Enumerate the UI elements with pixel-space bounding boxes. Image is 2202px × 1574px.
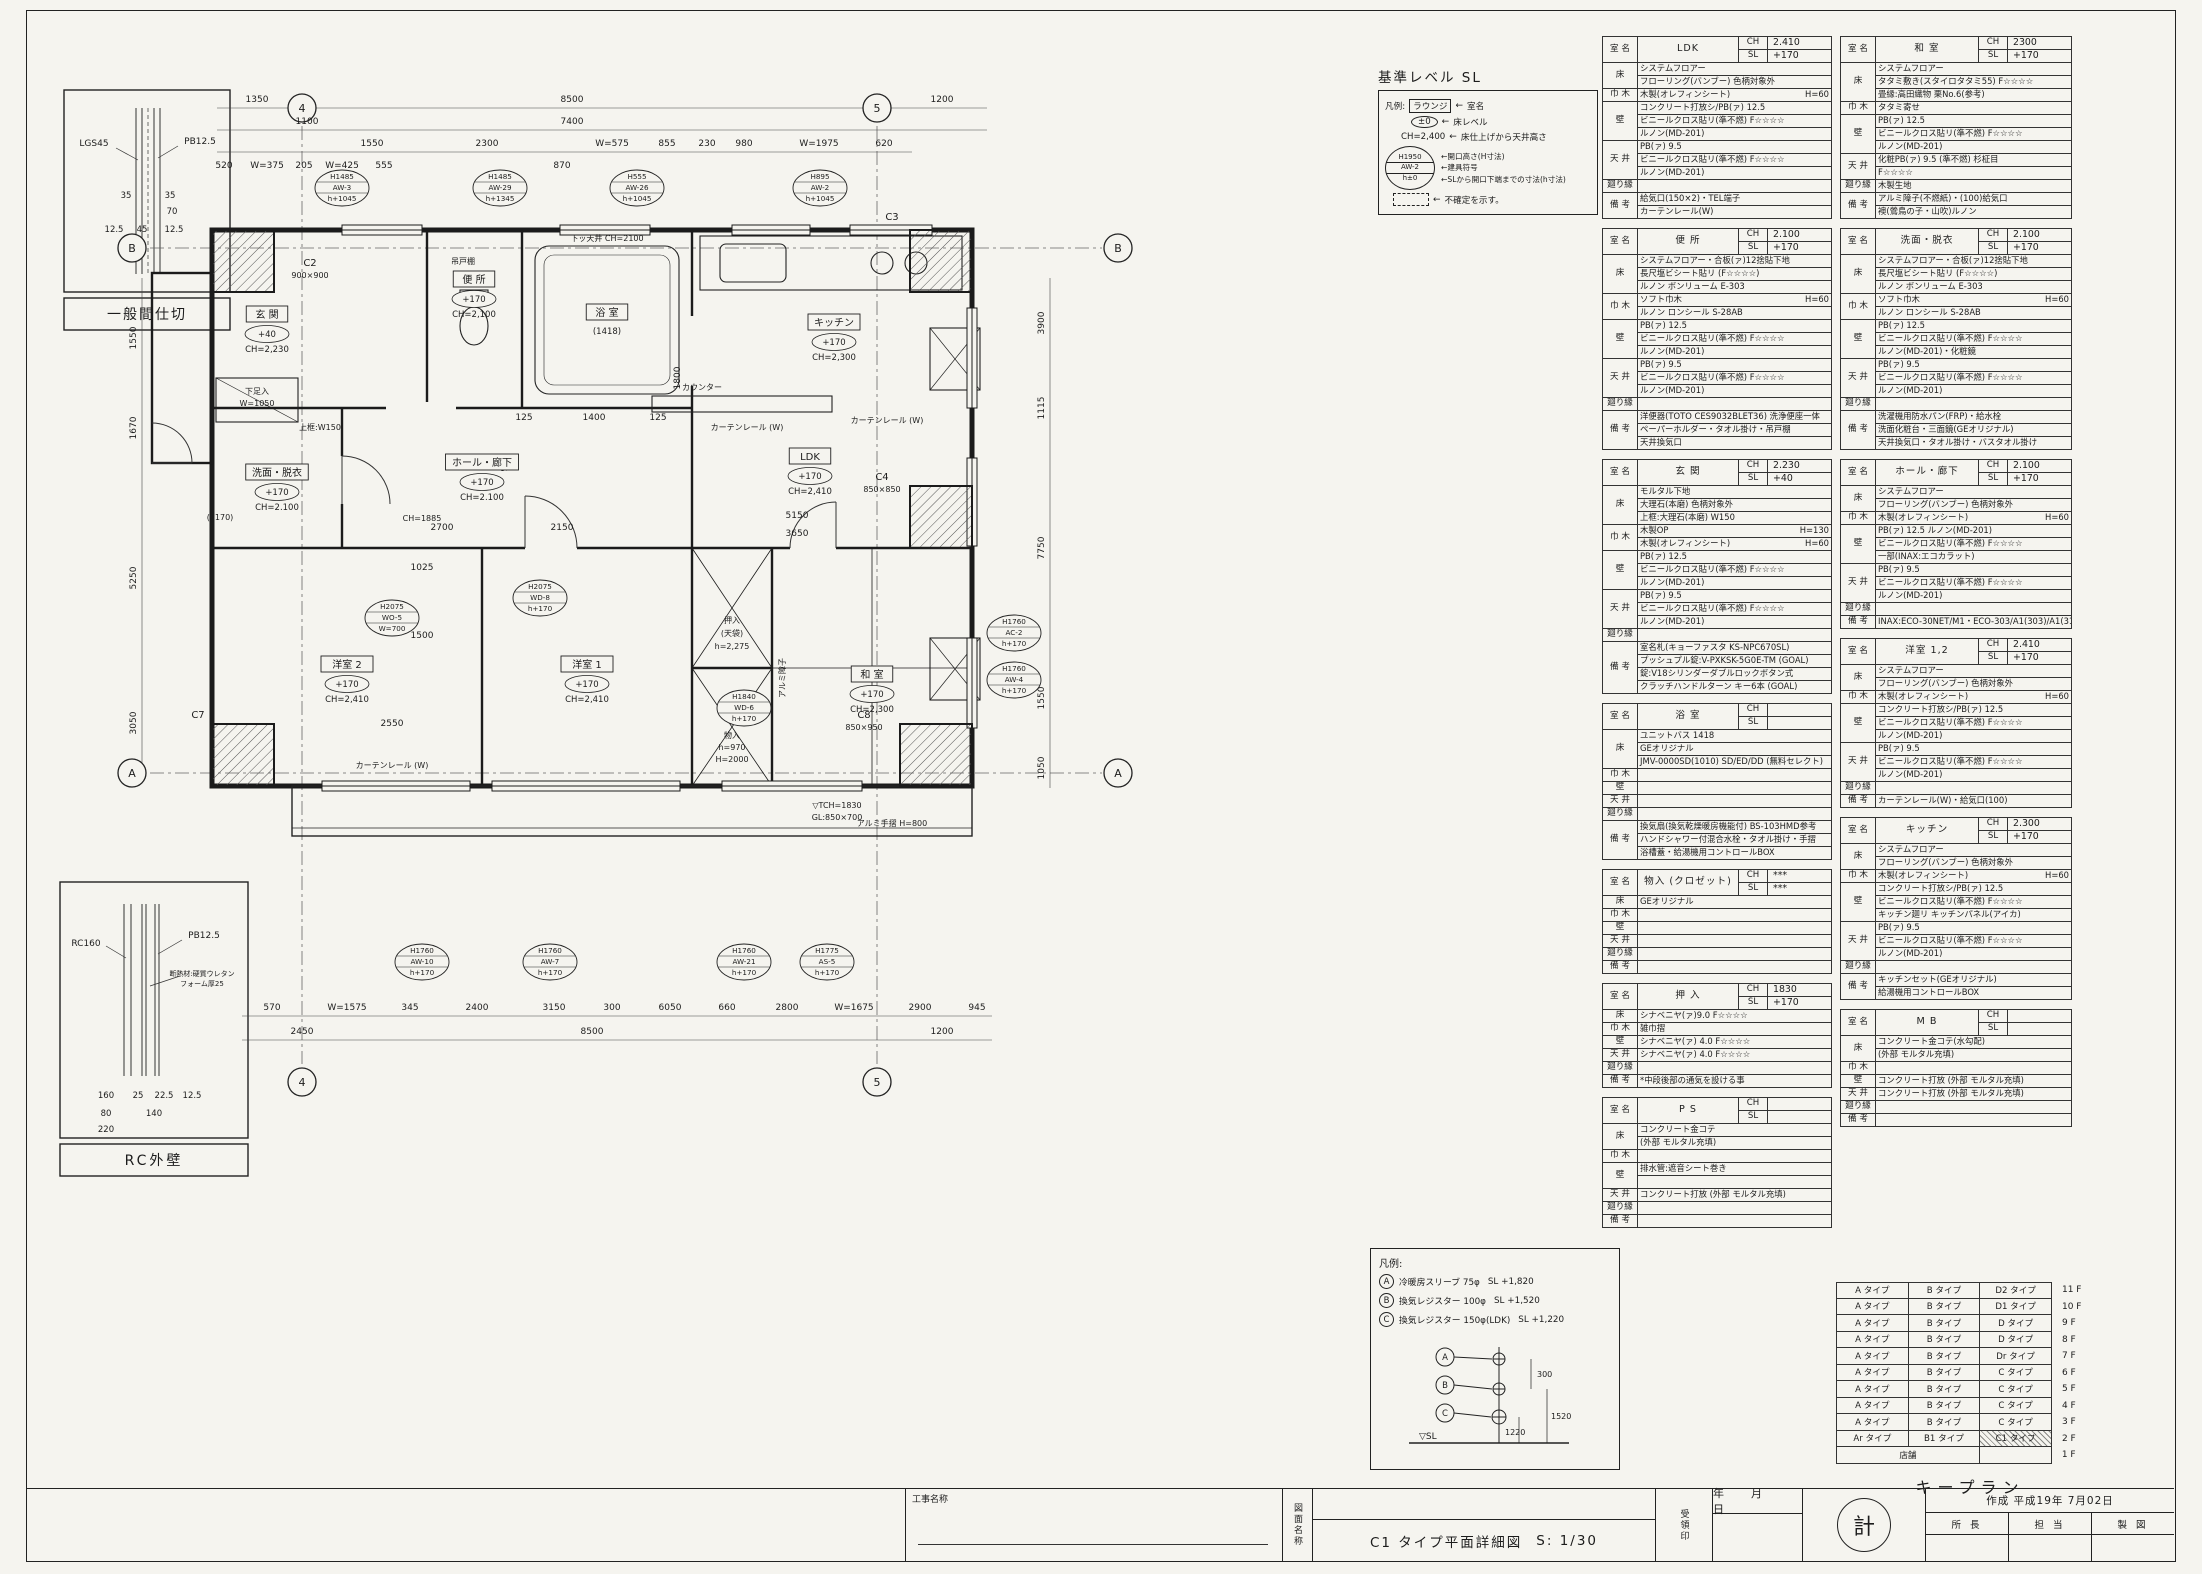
spec-line: PB(ァ) 9.5 bbox=[1876, 922, 2072, 935]
spec-cell: M B bbox=[1876, 1010, 1979, 1036]
spec-cell: CH bbox=[1739, 1098, 1768, 1111]
spec-line bbox=[1638, 948, 1832, 961]
column-C8 bbox=[900, 724, 972, 786]
spec-cell: +170 bbox=[2008, 831, 2072, 844]
spec-cell: 廻り縁 bbox=[1841, 1101, 1876, 1114]
spec-cell: CH bbox=[1739, 870, 1768, 883]
spec-cell: 備 考 bbox=[1841, 974, 1876, 1000]
spec-cell: 巾 木 bbox=[1603, 525, 1638, 551]
tag-line: H1950 bbox=[1386, 153, 1434, 162]
spec-cell: CH bbox=[1739, 984, 1768, 997]
spec-line bbox=[1638, 795, 1832, 808]
keyplan-cell: B タイプ bbox=[1909, 1315, 1981, 1332]
spec-cell: 床 bbox=[1841, 665, 1876, 691]
title-block: 工事名称 図面名称 C1 タイプ平面詳細図 S: 1/30 受領印 年 月 日 … bbox=[26, 1488, 2174, 1561]
dimension-label: 620 bbox=[875, 139, 892, 149]
spec-cell: CH bbox=[1979, 229, 2008, 242]
keyplan-cell: B1 タイプ bbox=[1909, 1431, 1981, 1448]
plan-note: 下足入 bbox=[245, 387, 269, 396]
spec-line: PB(ァ) 12.5 ルノン(MD-201) bbox=[1876, 525, 2072, 538]
spec-cell: 壁 bbox=[1841, 704, 1876, 743]
keyplan-row: A タイプB タイプC タイプ4 F bbox=[1836, 1398, 2104, 1415]
keyplan-floor-label: 1 F bbox=[2052, 1447, 2104, 1464]
legend-item-text: 換気レジスター 100φ bbox=[1399, 1294, 1486, 1307]
spec-line: ユニットバス 1418 bbox=[1638, 730, 1832, 743]
keyplan-floor-label: 8 F bbox=[2052, 1332, 2104, 1349]
dimension-label: 3050 bbox=[129, 711, 139, 734]
spec-cell: *** bbox=[1768, 870, 1832, 883]
spec-cell: 備 考 bbox=[1603, 411, 1638, 450]
dimension-label: 1550 bbox=[1037, 686, 1047, 709]
spec-line: コンクリート打放シ/PB(ァ) 12.5 bbox=[1876, 704, 2072, 717]
column-C7 bbox=[212, 724, 274, 786]
plan-note: カーテンレール (W) bbox=[356, 761, 429, 770]
spec-cell: +170 bbox=[1768, 242, 1832, 255]
keyplan-cell: B タイプ bbox=[1909, 1348, 1981, 1365]
spec-line: ビニールクロス貼リ(準不燃) F☆☆☆☆ bbox=[1638, 603, 1832, 616]
spec-line: シナベニヤ(ァ)9.0 F☆☆☆☆ bbox=[1638, 1010, 1832, 1023]
spec-cell: SL bbox=[1739, 50, 1768, 63]
spec-line: 天井換気口 bbox=[1638, 437, 1832, 450]
spec-cell: 天 井 bbox=[1603, 935, 1638, 948]
spec-cell: 室 名 bbox=[1841, 460, 1876, 486]
spec-cell: SL bbox=[1979, 831, 2008, 844]
spec-line: 長尺塩ビシート貼リ (F☆☆☆☆) bbox=[1638, 268, 1832, 281]
drawing-title-upper bbox=[1313, 1489, 1655, 1520]
plan-note: H=2000 bbox=[715, 755, 748, 764]
role-drafter: 製 図 bbox=[2091, 1513, 2174, 1534]
legend-undetermined-label: 不確定を示す。 bbox=[1445, 194, 1504, 206]
spec-line: INAX:ECO-30NET/M1・ECO-303/A1(303)/A1(31)… bbox=[1876, 616, 2072, 629]
spec-cell: +40 bbox=[1768, 473, 1832, 486]
dimension-label: 855 bbox=[658, 139, 675, 149]
legend-sample-room: ラウンジ bbox=[1409, 99, 1451, 113]
spec-cell: キッチン bbox=[1876, 818, 1979, 844]
spec-line: システムフロアー・合板(ァ)12捨貼下地 bbox=[1876, 255, 2072, 268]
keyplan-cell: B タイプ bbox=[1909, 1282, 1981, 1299]
date-cell: 年 月 日 bbox=[1712, 1489, 1802, 1561]
finish-schedule-PS: 室 名P SCH SL 床コンクリート金コテ(外部 モルタル充填)巾 木 壁排水… bbox=[1602, 1097, 1832, 1228]
spec-line bbox=[1638, 909, 1832, 922]
spec-line bbox=[1638, 782, 1832, 795]
stove-burner bbox=[871, 252, 893, 274]
keyplan-row: A タイプB タイプDr タイプ7 F bbox=[1836, 1348, 2104, 1365]
spec-cell: 天 井 bbox=[1603, 1189, 1638, 1202]
spec-line bbox=[1638, 1202, 1832, 1215]
grid-bubble-label: 4 bbox=[299, 102, 306, 115]
project-name-cell: 工事名称 bbox=[905, 1489, 1282, 1561]
ldk-counter bbox=[652, 396, 832, 412]
plan-note: ▽TCH=1830 bbox=[812, 801, 861, 810]
room-ceiling-height: (1418) bbox=[593, 327, 621, 337]
role-seal-box bbox=[2008, 1535, 2091, 1561]
finish-schedule-ホール・廊下: 室 名ホール・廊下CH2.100SL+170床システムフロアーフローリング(バン… bbox=[1840, 459, 2072, 629]
spec-line: ビニールクロス貼リ(準不燃) F☆☆☆☆ bbox=[1876, 896, 2072, 909]
spec-cell: 床 bbox=[1603, 1124, 1638, 1150]
fixture-tag-line: h+1045 bbox=[328, 194, 357, 203]
spec-cell: SL bbox=[1979, 242, 2008, 255]
keyplan-cell: B タイプ bbox=[1909, 1398, 1981, 1415]
finish-schedule-MB: 室 名M BCH SL 床コンクリート金コテ(水勾配)(外部 モルタル充填)巾 … bbox=[1840, 1009, 2072, 1127]
spec-cell: LDK bbox=[1638, 37, 1739, 63]
spec-cell: 洋室 1,2 bbox=[1876, 639, 1979, 665]
spec-line bbox=[1638, 180, 1832, 193]
spec-line: 洋便器(TOTO CES9032BLET36) 洗浄便座一体 bbox=[1638, 411, 1832, 424]
rcwall-caption: RC外壁 bbox=[125, 1153, 184, 1169]
dimension-label: 660 bbox=[718, 1003, 735, 1013]
plan-note: CH=1885 bbox=[403, 514, 442, 523]
fixtures bbox=[216, 236, 980, 836]
role-chief: 所 長 bbox=[1926, 1513, 2008, 1534]
spec-line: ルノン(MD-201) bbox=[1876, 141, 2072, 154]
fixture-tag-line: W=700 bbox=[379, 624, 406, 633]
spec-cell: 天 井 bbox=[1841, 743, 1876, 782]
spec-cell: 壁 bbox=[1841, 883, 1876, 922]
arrow-icon: ← bbox=[1433, 195, 1441, 205]
spec-line: 錠:V18シリンダーダブルロックボタン式 bbox=[1638, 668, 1832, 681]
spec-line: PB(ァ) 9.5 bbox=[1638, 359, 1832, 372]
grid-bubble-label: 4 bbox=[299, 1076, 306, 1089]
room-ceiling-height: CH=2,100 bbox=[452, 310, 496, 320]
spec-line: ビニールクロス貼リ(準不燃) F☆☆☆☆ bbox=[1876, 756, 2072, 769]
approval-seal: 計 bbox=[1837, 1498, 1891, 1552]
spec-cell: 廻り縁 bbox=[1603, 398, 1638, 411]
keyplan-row: A タイプB タイプD2 タイプ11 F bbox=[1836, 1282, 2104, 1299]
spec-line: ペーパーホルダー・タオル掛け・吊戸棚 bbox=[1638, 424, 1832, 437]
spec-line: ビニールクロス貼リ(準不燃) F☆☆☆☆ bbox=[1876, 538, 2072, 551]
spec-cell: +170 bbox=[2008, 652, 2072, 665]
spec-cell: +170 bbox=[2008, 473, 2072, 486]
spec-line: システムフロアー・合板(ァ)12捨貼下地 bbox=[1638, 255, 1832, 268]
plan-note: 下ッ天井 CH=2100 bbox=[570, 233, 643, 243]
spec-cell: 室 名 bbox=[1603, 984, 1638, 1010]
room-ceiling-height: CH=2,410 bbox=[325, 695, 369, 705]
column-size: 850×950 bbox=[845, 723, 882, 732]
spec-cell: SL bbox=[1739, 997, 1768, 1010]
spec-cell: 巾 木 bbox=[1841, 512, 1876, 525]
spec-line: ビニールクロス貼リ(準不燃) F☆☆☆☆ bbox=[1638, 564, 1832, 577]
spec-line: ルノン(MD-201) bbox=[1638, 128, 1832, 141]
fixture-tag-line: h+170 bbox=[538, 968, 563, 977]
spec-cell: 物入 (クロゼット) bbox=[1638, 870, 1739, 896]
drawing-scale: S: 1/30 bbox=[1536, 1533, 1598, 1549]
spec-line: モルタル下地 bbox=[1638, 486, 1832, 499]
floor-plan: C2900×900C3C4850×850C8850×950C7 4545BABA… bbox=[92, 78, 1160, 1140]
spec-cell: 備 考 bbox=[1841, 795, 1876, 808]
grid-bubble-label: B bbox=[1114, 242, 1122, 255]
spec-line: カーテンレール(W)・給気口(100) bbox=[1876, 795, 2072, 808]
fixture-tag-line: AW-7 bbox=[541, 957, 560, 966]
spec-line: ビニールクロス貼リ(準不燃) F☆☆☆☆ bbox=[1876, 128, 2072, 141]
fixture-tag-line: h+1045 bbox=[806, 194, 835, 203]
room-name: キッチン bbox=[814, 317, 854, 329]
spec-line: システムフロアー bbox=[1876, 486, 2072, 499]
keyplan-floor-label: 5 F bbox=[2052, 1381, 2104, 1398]
spec-cell: 床 bbox=[1841, 1036, 1876, 1062]
spec-cell: 壁 bbox=[1603, 1163, 1638, 1189]
spec-line: GEオリジナル bbox=[1638, 896, 1832, 909]
spec-cell: 壁 bbox=[1603, 102, 1638, 141]
drawing-title: C1 タイプ平面詳細図 bbox=[1370, 1531, 1522, 1551]
spec-cell: 室 名 bbox=[1603, 1098, 1638, 1124]
column-label: C2 bbox=[303, 258, 316, 269]
keyplan-cell: D1 タイプ bbox=[1980, 1299, 2052, 1316]
spec-line: コンクリート金コテ(水勾配) bbox=[1876, 1036, 2072, 1049]
spec-cell: +170 bbox=[1768, 50, 1832, 63]
column-C3 bbox=[910, 230, 972, 292]
spec-line: (外部 モルタル充填) bbox=[1638, 1137, 1832, 1150]
spec-line: 襖(鶯鳥の子・山吹)ルノン bbox=[1876, 206, 2072, 219]
spec-line: PB(ァ) 9.5 bbox=[1876, 743, 2072, 756]
spec-cell: 廻り縁 bbox=[1841, 398, 1876, 411]
stamp-cell: 計 bbox=[1802, 1489, 1925, 1561]
spec-line bbox=[1876, 398, 2072, 411]
fixture-tag-line: h+1045 bbox=[623, 194, 652, 203]
finish-schedule-玄関: 室 名玄 関CH2.230SL+40床モルタル下地大理石(本磨) 色柄対象外上框… bbox=[1602, 459, 1832, 694]
spec-cell: 室 名 bbox=[1841, 37, 1876, 63]
keyplan-cell: B タイプ bbox=[1909, 1414, 1981, 1431]
dimension-label: 5150 bbox=[786, 511, 809, 521]
spec-cell: 天 井 bbox=[1841, 1088, 1876, 1101]
spec-cell: 廻り縁 bbox=[1603, 808, 1638, 821]
spec-line: 給気口(150×2)・TEL端子 bbox=[1638, 193, 1832, 206]
grid-bubble-label: B bbox=[128, 242, 136, 255]
room-name: 便 所 bbox=[462, 273, 485, 286]
titleblock-blank-cell bbox=[26, 1489, 905, 1561]
column-label: C7 bbox=[191, 710, 204, 721]
spec-cell: +170 bbox=[2008, 242, 2072, 255]
spec-cell: CH bbox=[1739, 37, 1768, 50]
spec-cell: 天 井 bbox=[1603, 141, 1638, 180]
legend-tag-label: 建具符号 bbox=[1447, 163, 1477, 172]
spec-cell: 2300 bbox=[2008, 37, 2072, 50]
keyplan-cell: A タイプ bbox=[1836, 1414, 1909, 1431]
finish-schedule-キッチン: 室 名キッチンCH2.300SL+170床システムフロアーフローリング(バンブー… bbox=[1840, 817, 2072, 1000]
spec-cell: 巾 木 bbox=[1603, 909, 1638, 922]
legend-item: A冷暖房スリーブ 75φSL +1,820 bbox=[1379, 1274, 1611, 1289]
spec-line: 排水管:遮音シート巻き bbox=[1638, 1163, 1832, 1176]
spec-cell: 巾 木 bbox=[1603, 769, 1638, 782]
role-seal-box bbox=[1926, 1535, 2008, 1561]
arrow-icon: ← bbox=[1455, 101, 1463, 111]
spec-line: GEオリジナル bbox=[1638, 743, 1832, 756]
arrow-icon: ← bbox=[1449, 132, 1457, 142]
spec-cell: 2.300 bbox=[2008, 818, 2072, 831]
keyplan-span-cell: 店舗 bbox=[1836, 1447, 1980, 1464]
keyplan-cell: B タイプ bbox=[1909, 1332, 1981, 1349]
dimension-label: 1025 bbox=[411, 563, 434, 573]
room-level: +170 bbox=[265, 488, 288, 498]
spec-cell: 備 考 bbox=[1603, 193, 1638, 219]
dimension-label: 2300 bbox=[476, 139, 499, 149]
dimension-label: W=1975 bbox=[799, 139, 838, 149]
spec-cell: 室 名 bbox=[1841, 1010, 1876, 1036]
spec-line: PB(ァ) 9.5 bbox=[1638, 590, 1832, 603]
spec-cell: 天 井 bbox=[1603, 359, 1638, 398]
dimension-label: 2900 bbox=[909, 1003, 932, 1013]
spec-line: 大理石(本磨) 色柄対象外 bbox=[1638, 499, 1832, 512]
finish-schedule-和室: 室 名和 室CH2300SL+170床システムフロアータタミ敷き(スタイロタタミ… bbox=[1840, 36, 2072, 219]
spec-line bbox=[1638, 922, 1832, 935]
spec-cell: 壁 bbox=[1603, 1036, 1638, 1049]
diagram-key: B bbox=[1442, 1381, 1448, 1391]
spec-cell: CH bbox=[1739, 704, 1768, 717]
finish-schedule-押入: 室 名押 入CH1830SL+170床シナベニヤ(ァ)9.0 F☆☆☆☆巾 木雑… bbox=[1602, 983, 1832, 1088]
keyplan-row: Ar タイプB1 タイプC1 タイプ2 F bbox=[1836, 1431, 2104, 1448]
sleeve-height-diagram: A B C 300 1520 1220 ▽SL bbox=[1379, 1331, 1593, 1459]
finish-schedule-浴室: 室 名浴 室CH SL 床ユニットバス 1418GEオリジナルJMV-0000S… bbox=[1602, 703, 1832, 860]
plan-note: 吊戸棚 bbox=[451, 256, 475, 266]
keyplan-floor-label: 3 F bbox=[2052, 1414, 2104, 1431]
spec-line: 化粧PB(ァ) 9.5 (準不燃) 杉柾目 bbox=[1876, 154, 2072, 167]
spec-line bbox=[1876, 961, 2072, 974]
dimension-label: 3650 bbox=[786, 529, 809, 539]
spec-cell: 室 名 bbox=[1603, 229, 1638, 255]
keyplan-cell: A タイプ bbox=[1836, 1398, 1909, 1415]
spec-line: PB(ァ) 12.5 bbox=[1638, 551, 1832, 564]
legend-ch-label: 床仕上げから天井高さ bbox=[1461, 131, 1547, 143]
dimension-label: 980 bbox=[735, 139, 752, 149]
spec-cell: 床 bbox=[1603, 486, 1638, 525]
dimension-label: 1670 bbox=[129, 416, 139, 439]
legend-base-level: 基準レベル SL 凡例: ラウンジ ← 室名 ±0 ← 床レベル CH=2,40… bbox=[1378, 66, 1598, 215]
spec-line: 木製(オレフィンシート)H=60 bbox=[1638, 89, 1832, 102]
spec-line: ルノン(MD-201) bbox=[1876, 590, 2072, 603]
dimension-label: 6050 bbox=[659, 1003, 682, 1013]
room-ceiling-height: CH=2.100 bbox=[460, 493, 504, 503]
fixture-tag-line: H1760 bbox=[410, 946, 434, 955]
spec-cell: SL bbox=[1979, 50, 2008, 63]
spec-line: 換気扇(換気乾燥暖房機能付) BS-103HMD参考 bbox=[1638, 821, 1832, 834]
dimension-label: 3150 bbox=[543, 1003, 566, 1013]
spec-line: 木製(オレフィンシート)H=60 bbox=[1876, 691, 2072, 704]
floor-plan-drawing: C2900×900C3C4850×850C8850×950C7 4545BABA… bbox=[92, 78, 1160, 1140]
dimension-label: 2550 bbox=[381, 719, 404, 729]
keyplan-cell: C タイプ bbox=[1980, 1414, 2052, 1431]
column-size: 850×850 bbox=[863, 485, 900, 494]
spec-line: 長尺塩ビシート貼リ (F☆☆☆☆) bbox=[1876, 268, 2072, 281]
room-name: 洋室 2 bbox=[332, 658, 362, 671]
spec-line: フローリング(バンブー) 色柄対象外 bbox=[1876, 857, 2072, 870]
spec-cell: 室 名 bbox=[1603, 870, 1638, 896]
spec-line: PB(ァ) 9.5 bbox=[1876, 359, 2072, 372]
spec-line bbox=[1638, 398, 1832, 411]
fixture-tag-line: h+1345 bbox=[486, 194, 515, 203]
dimension-label: 1350 bbox=[246, 95, 269, 105]
dimension-label: 1500 bbox=[411, 631, 434, 641]
fixture-tag-line: AC-2 bbox=[1006, 628, 1023, 637]
spec-line: コンクリート金コテ bbox=[1638, 1124, 1832, 1137]
spec-line: ビニールクロス貼リ(準不燃) F☆☆☆☆ bbox=[1638, 154, 1832, 167]
dimension-label: 230 bbox=[698, 139, 715, 149]
spec-line bbox=[1638, 1150, 1832, 1163]
dimension-label: 205 bbox=[295, 161, 312, 171]
legend-item-value: SL +1,520 bbox=[1494, 1296, 1540, 1306]
spec-cell: 備 考 bbox=[1841, 1114, 1876, 1127]
created-cell: 作成 平成19年 7月02日 所 長 担 当 製 図 bbox=[1925, 1489, 2174, 1561]
spec-cell: 天 井 bbox=[1603, 1049, 1638, 1062]
spec-line: ルノン(MD-201) bbox=[1638, 167, 1832, 180]
spec-line bbox=[1876, 1101, 2072, 1114]
keyplan-row: A タイプB タイプC タイプ3 F bbox=[1836, 1414, 2104, 1431]
spec-cell: 廻り縁 bbox=[1603, 1062, 1638, 1075]
legend-item-key-icon: A bbox=[1379, 1274, 1394, 1289]
legend-sample-ch: CH=2,400 bbox=[1401, 132, 1445, 142]
spec-line bbox=[1638, 769, 1832, 782]
spec-cell: *** bbox=[1768, 883, 1832, 896]
role-incharge: 担 当 bbox=[2008, 1513, 2091, 1534]
plan-note: h=2,275 bbox=[715, 642, 750, 651]
spec-line: ルノン(MD-201) bbox=[1638, 346, 1832, 359]
drawing-title-cell: C1 タイプ平面詳細図 S: 1/30 bbox=[1312, 1489, 1655, 1561]
spec-line: カーテンレール(W) bbox=[1638, 206, 1832, 219]
dimension-label: 1100 bbox=[296, 117, 319, 127]
spec-cell: 備 考 bbox=[1603, 821, 1638, 860]
spec-cell: 天 井 bbox=[1603, 795, 1638, 808]
spec-cell: +170 bbox=[2008, 50, 2072, 63]
dimension-label: 570 bbox=[263, 1003, 280, 1013]
spec-line: ルノン(MD-201) bbox=[1876, 948, 2072, 961]
role-seal-box bbox=[2091, 1535, 2174, 1561]
room-level: +170 bbox=[462, 295, 485, 305]
diagram-sl: ▽SL bbox=[1419, 1432, 1437, 1442]
spec-cell: 2.100 bbox=[2008, 229, 2072, 242]
spec-line: PB(ァ) 12.5 bbox=[1876, 320, 2072, 333]
legend-item: C換気レジスター 150φ(LDK)SL +1,220 bbox=[1379, 1312, 1611, 1327]
legend-tag-label: 開口高さ(H寸法) bbox=[1447, 152, 1504, 161]
spec-line: 洗濯機用防水パン(FRP)・給水栓 bbox=[1876, 411, 2072, 424]
spec-cell: 巾 木 bbox=[1603, 1023, 1638, 1036]
spec-cell: 2.230 bbox=[1768, 460, 1832, 473]
spec-line: ビニールクロス貼リ(準不燃) F☆☆☆☆ bbox=[1876, 333, 2072, 346]
dimension-label: 8500 bbox=[561, 95, 584, 105]
fixture-tag-line: WD-6 bbox=[734, 703, 754, 712]
spec-cell bbox=[1768, 717, 1832, 730]
spec-cell: +170 bbox=[1768, 997, 1832, 1010]
kitchen-sink bbox=[720, 244, 786, 282]
spec-line: ルノン ボンリューム E-303 bbox=[1876, 281, 2072, 294]
dimension-label: 520 bbox=[215, 161, 232, 171]
spec-line: ルノン ロンシール S-28AB bbox=[1876, 307, 2072, 320]
spec-cell: 廻り縁 bbox=[1841, 961, 1876, 974]
legend-floor-label: 床レベル bbox=[1453, 116, 1487, 128]
keyplan-cell: D タイプ bbox=[1980, 1315, 2052, 1332]
spec-cell: 室 名 bbox=[1603, 460, 1638, 486]
keyplan-cell: D タイプ bbox=[1980, 1332, 2052, 1349]
dimension-label: W=1675 bbox=[834, 1003, 873, 1013]
spec-cell: CH bbox=[1979, 1010, 2008, 1023]
finish-schedule-column-1: 室 名LDKCH2.410SL+170床システムフロアーフローリング(バンブー)… bbox=[1602, 36, 1832, 1237]
dimension-label: 125 bbox=[515, 413, 532, 423]
fixture-tag-line: H1760 bbox=[538, 946, 562, 955]
spec-cell: 廻り縁 bbox=[1603, 629, 1638, 642]
spec-cell: SL bbox=[1739, 717, 1768, 730]
spec-cell: 2.410 bbox=[2008, 639, 2072, 652]
spec-cell: 壁 bbox=[1603, 551, 1638, 590]
spec-cell: 浴 室 bbox=[1638, 704, 1739, 730]
column-C2 bbox=[212, 230, 274, 292]
dimension-label: 1050 bbox=[1037, 756, 1047, 779]
plan-note: h=970 bbox=[718, 743, 745, 752]
dimension-label: W=575 bbox=[595, 139, 629, 149]
legend-item-key-icon: B bbox=[1379, 1293, 1394, 1308]
plan-note: 押入 bbox=[724, 615, 740, 625]
spec-cell: 備 考 bbox=[1841, 193, 1876, 219]
spec-line: ハンドシャワー付混合水栓・タオル掛け・手摺 bbox=[1638, 834, 1832, 847]
room-name: 和 室 bbox=[860, 668, 883, 681]
spec-line: システムフロアー bbox=[1876, 665, 2072, 678]
spec-cell: 1830 bbox=[1768, 984, 1832, 997]
